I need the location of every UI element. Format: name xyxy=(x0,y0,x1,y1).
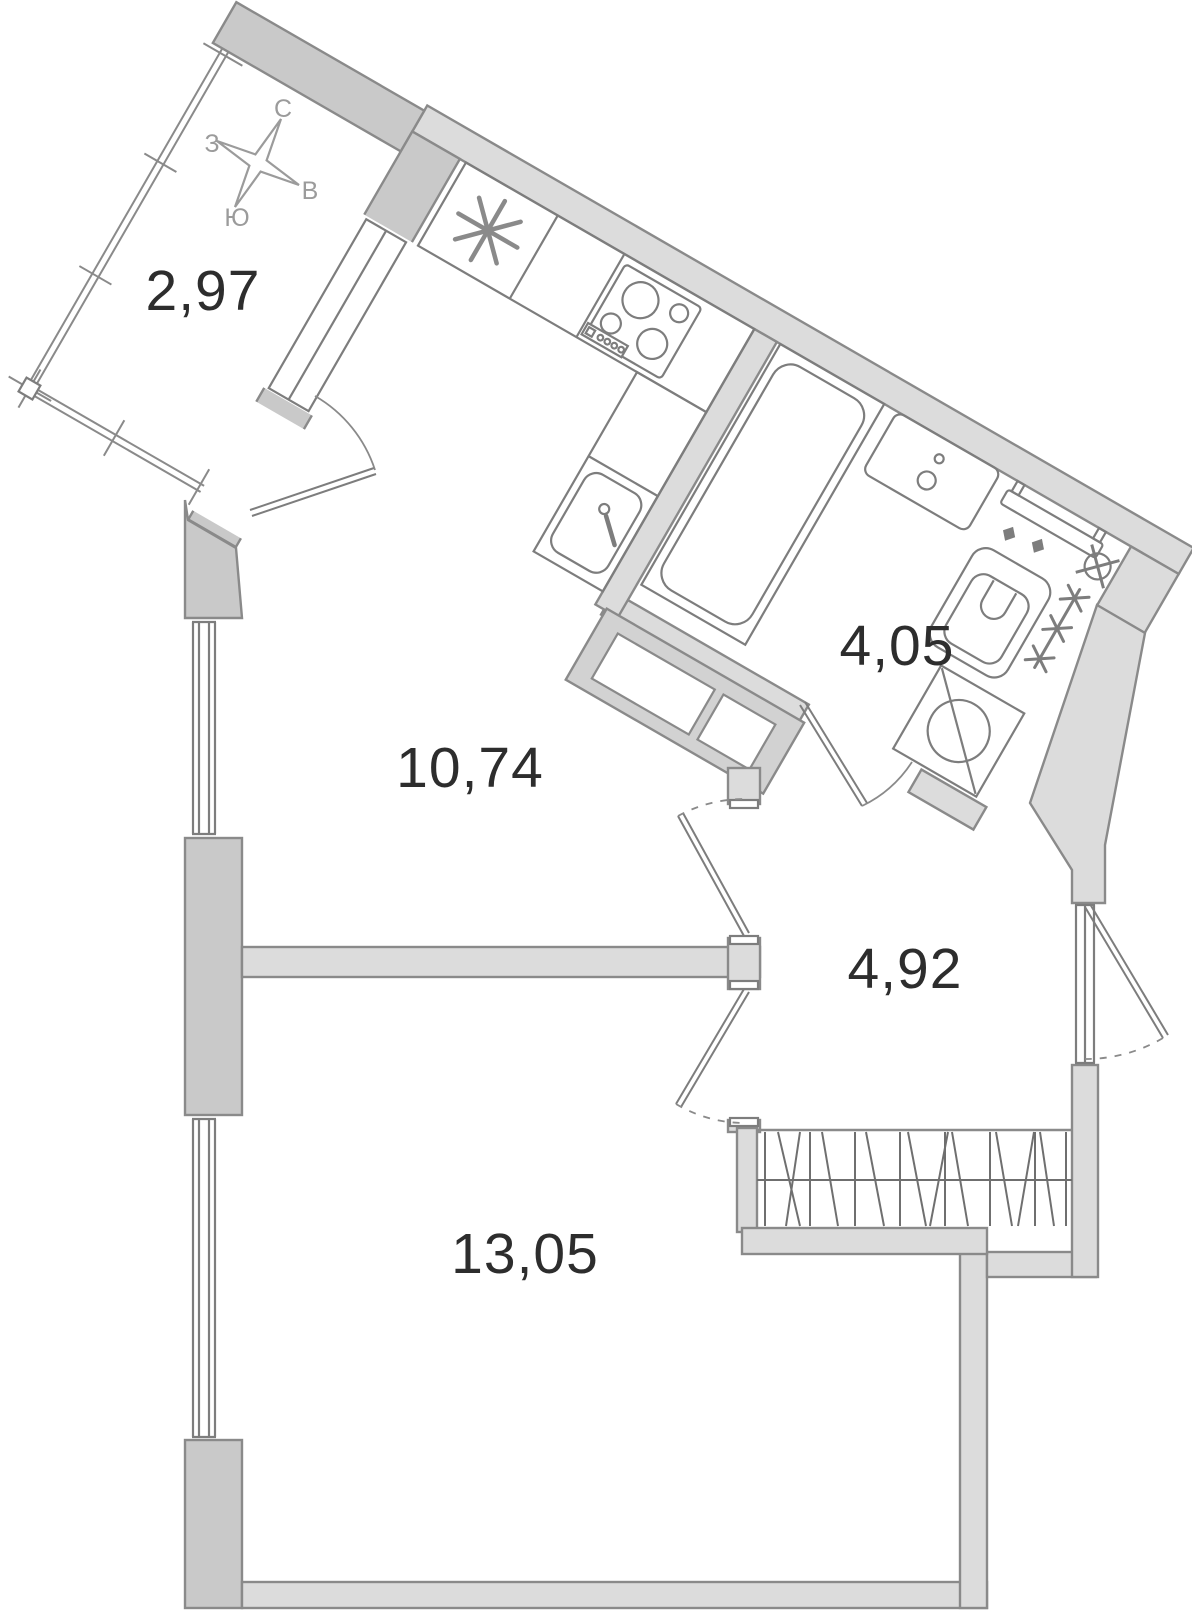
balcony-top-wall xyxy=(213,2,424,151)
bedroom-right-wall xyxy=(960,1252,987,1608)
label-bedroom-area: 13,05 xyxy=(451,1222,599,1286)
window-living xyxy=(192,622,216,834)
hallway-balcony-door xyxy=(1075,904,1168,1063)
hall-wall-seg1 xyxy=(728,768,760,804)
compass-east: В xyxy=(302,177,319,205)
bathroom-bottom-wall-right xyxy=(908,770,986,830)
room-divider-wall xyxy=(242,947,760,977)
north-wall xyxy=(412,106,1192,574)
compass-rose-icon: С З В Ю xyxy=(204,95,318,232)
hallway-right-wall xyxy=(1072,1065,1098,1277)
floor-plan: С З В Ю 2,97 10,74 4,05 4,92 13,05 xyxy=(0,0,1192,1612)
compass-south: Ю xyxy=(224,204,249,232)
label-kitchen-area: 10,74 xyxy=(396,736,544,800)
fridge-icon xyxy=(441,184,534,277)
window-bedroom xyxy=(192,1119,216,1437)
label-bathroom-area: 4,05 xyxy=(840,614,955,678)
left-wall-mid xyxy=(185,838,242,1115)
compass-west: З xyxy=(204,130,219,158)
diagonal-right-wall xyxy=(1030,605,1145,903)
door-bedroom xyxy=(676,981,758,1126)
left-wall-bottom xyxy=(185,1440,242,1608)
washing-machine-icon xyxy=(893,665,1024,796)
bottom-wall xyxy=(242,1582,987,1608)
wardrobe-icon xyxy=(757,1130,1072,1226)
wardrobe-bottom-wall xyxy=(742,1228,987,1254)
door-bathroom xyxy=(800,702,912,806)
door-living xyxy=(678,799,758,944)
compass-north: С xyxy=(274,95,292,123)
tilted-section xyxy=(0,0,1192,962)
kitchen-bathroom-divider xyxy=(595,329,777,617)
label-hallway-area: 4,92 xyxy=(848,937,963,1001)
wardrobe-left-wall xyxy=(737,1128,757,1232)
balcony-window xyxy=(262,213,415,417)
label-balcony-area: 2,97 xyxy=(146,259,261,323)
floor-plan-svg: С З В Ю 2,97 10,74 4,05 4,92 13,05 xyxy=(0,0,1192,1612)
